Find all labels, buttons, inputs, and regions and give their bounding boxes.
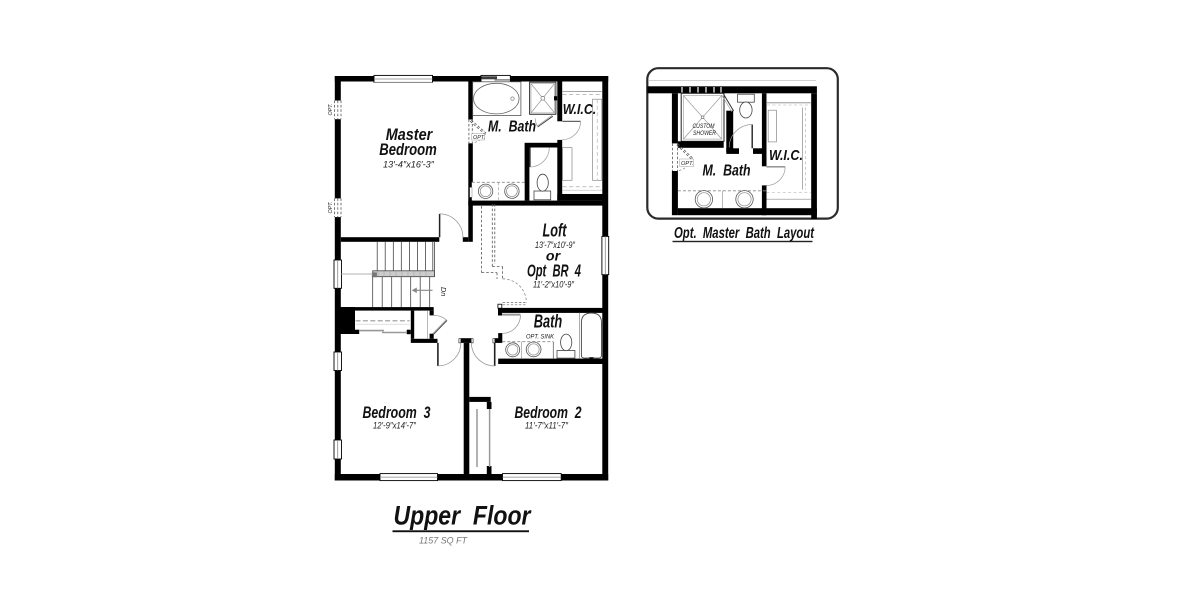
svg-text:Loft: Loft	[543, 221, 568, 241]
svg-text:Bedroom 2: Bedroom 2	[515, 403, 582, 422]
svg-text:OPT.: OPT.	[328, 201, 334, 213]
svg-text:OPT. SINK: OPT. SINK	[526, 333, 555, 340]
svg-text:11′-7″x11′-7″: 11′-7″x11′-7″	[525, 420, 569, 430]
svg-text:Dn: Dn	[439, 287, 448, 296]
svg-text:OPT.: OPT.	[328, 103, 334, 115]
svg-text:Bedroom: Bedroom	[379, 140, 437, 159]
svg-text:CUSTOM: CUSTOM	[693, 123, 716, 130]
svg-text:Upper Floor: Upper Floor	[394, 501, 532, 531]
svg-text:W.I.C.: W.I.C.	[563, 101, 597, 118]
svg-text:1157 SQ FT: 1157 SQ FT	[419, 536, 468, 546]
svg-text:OPT.: OPT.	[681, 161, 694, 167]
svg-text:SHOWER: SHOWER	[693, 130, 716, 137]
svg-text:Opt. Master Bath Layout: Opt. Master Bath Layout	[674, 225, 815, 242]
svg-text:Opt BR 4: Opt BR 4	[527, 261, 581, 281]
svg-text:M. Bath: M. Bath	[488, 119, 536, 136]
svg-text:W.I.C.: W.I.C.	[769, 147, 803, 164]
svg-text:Bedroom 3: Bedroom 3	[363, 403, 431, 422]
svg-text:12′-9″x14′-7″: 12′-9″x14′-7″	[373, 420, 417, 430]
svg-text:13′-4″x16′-3″: 13′-4″x16′-3″	[383, 159, 435, 169]
svg-text:11′-2″x10′-9″: 11′-2″x10′-9″	[533, 279, 575, 289]
svg-text:M. Bath: M. Bath	[703, 163, 751, 180]
svg-text:OPT.: OPT.	[473, 135, 485, 141]
svg-text:Bath: Bath	[534, 312, 563, 332]
